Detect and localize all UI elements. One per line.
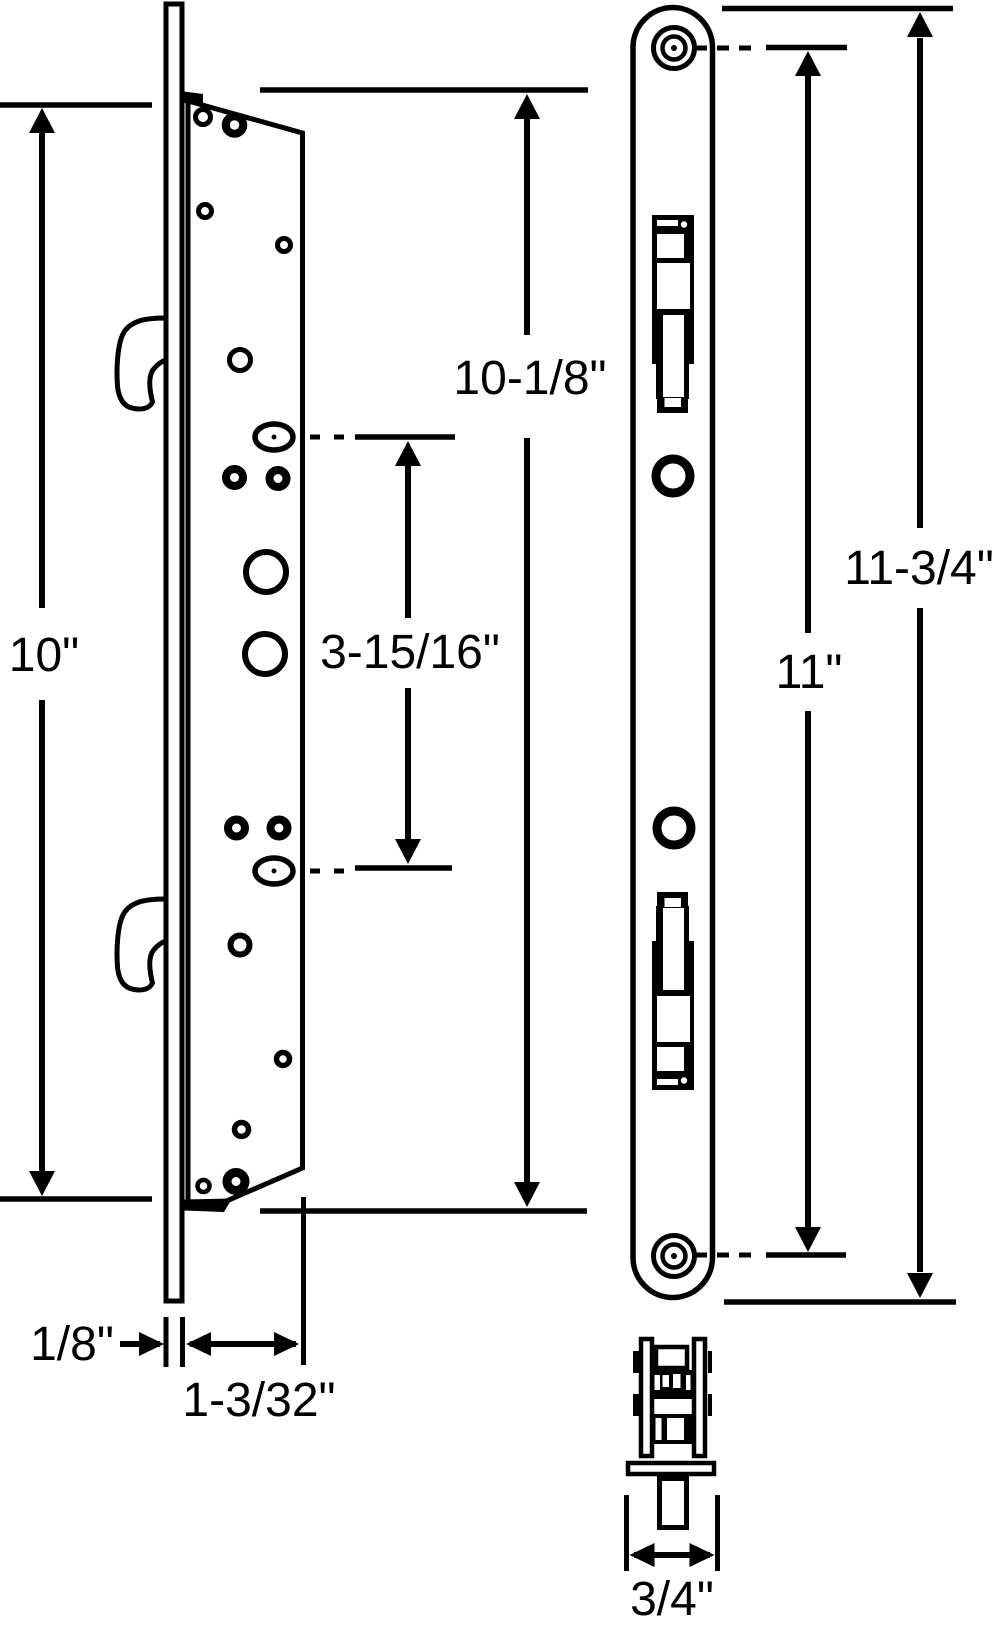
- svg-text:11": 11": [776, 646, 843, 699]
- svg-text:11-3/4": 11-3/4": [844, 542, 994, 595]
- svg-text:10-1/8": 10-1/8": [453, 352, 606, 405]
- svg-text:1/8": 1/8": [30, 1318, 114, 1371]
- svg-text:3-15/16": 3-15/16": [320, 626, 500, 679]
- svg-text:1-3/32": 1-3/32": [182, 1374, 335, 1427]
- svg-text:10": 10": [9, 629, 79, 682]
- svg-text:3/4": 3/4": [630, 1573, 714, 1626]
